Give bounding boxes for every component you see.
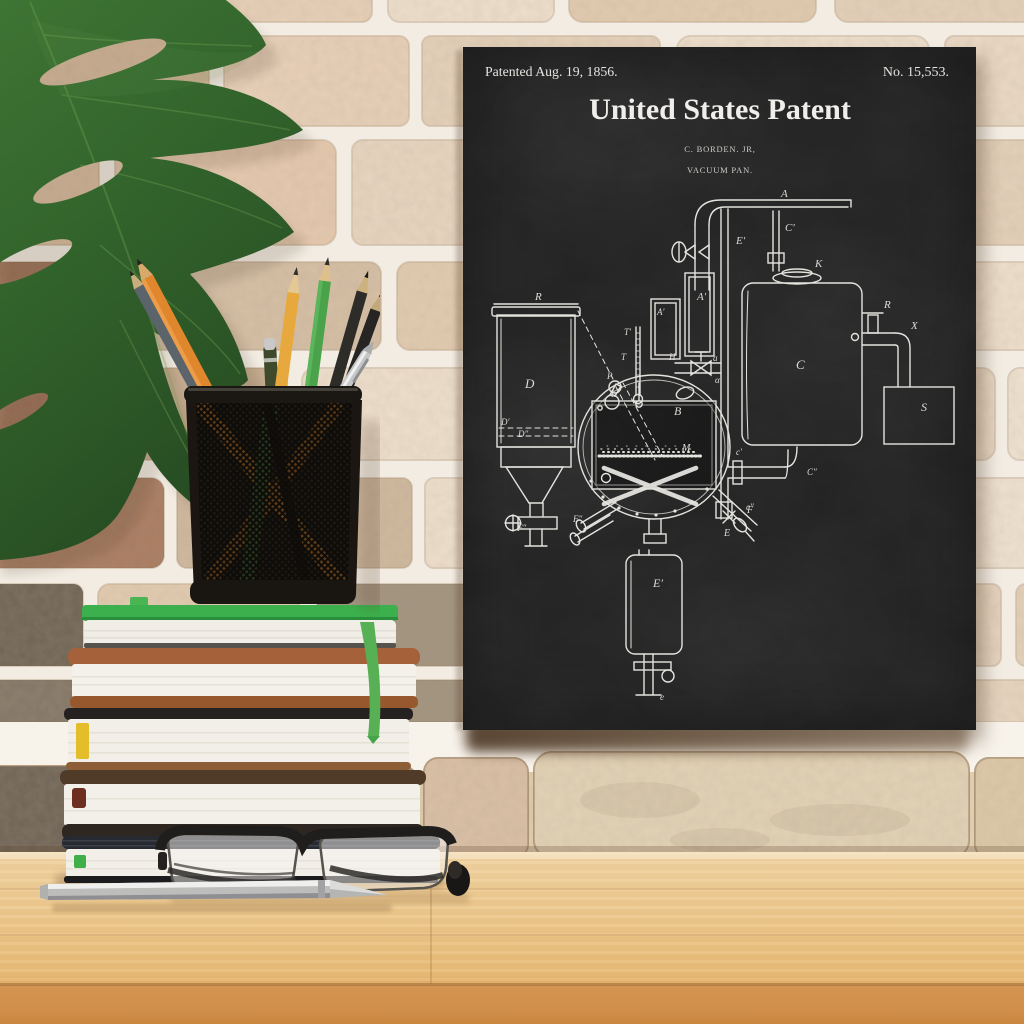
- svg-text:C: C: [796, 357, 805, 372]
- svg-text:Patented Aug. 19, 1856.: Patented Aug. 19, 1856.: [485, 64, 618, 79]
- svg-text:α: α: [715, 375, 720, 385]
- svg-text:F″: F″: [516, 523, 526, 533]
- svg-text:P: P: [606, 371, 613, 381]
- svg-text:A: A: [780, 188, 788, 200]
- svg-text:VACUUM PAN.: VACUUM PAN.: [687, 165, 753, 175]
- svg-text:B: B: [674, 404, 682, 418]
- svg-text:K: K: [814, 258, 823, 270]
- svg-text:C′: C′: [785, 222, 795, 234]
- svg-text:e: e: [660, 692, 664, 702]
- svg-text:C″: C″: [807, 467, 817, 477]
- svg-text:X: X: [910, 320, 919, 332]
- svg-text:D: D: [524, 376, 535, 391]
- svg-text:c′: c′: [736, 447, 743, 457]
- svg-text:D′: D′: [500, 417, 510, 427]
- svg-text:D″: D″: [517, 429, 528, 439]
- svg-text:C. BORDEN. JR,: C. BORDEN. JR,: [684, 144, 755, 154]
- svg-text:F: F: [746, 505, 754, 516]
- svg-text:L: L: [610, 389, 616, 399]
- svg-text:E′: E′: [735, 235, 746, 247]
- svg-text:R: R: [534, 291, 542, 303]
- svg-text:E: E: [723, 528, 730, 539]
- svg-text:T′: T′: [624, 327, 632, 337]
- svg-text:F″: F″: [572, 514, 582, 524]
- svg-text:No. 15,553.: No. 15,553.: [883, 65, 949, 80]
- svg-text:United States Patent: United States Patent: [589, 93, 851, 126]
- svg-text:E′: E′: [652, 576, 663, 590]
- svg-text:A′: A′: [656, 307, 665, 317]
- svg-text:M: M: [681, 443, 691, 454]
- svg-text:a: a: [713, 353, 718, 363]
- svg-text:R: R: [883, 299, 891, 311]
- svg-text:A′: A′: [696, 291, 707, 303]
- svg-text:H: H: [668, 352, 676, 362]
- svg-text:S: S: [921, 400, 927, 414]
